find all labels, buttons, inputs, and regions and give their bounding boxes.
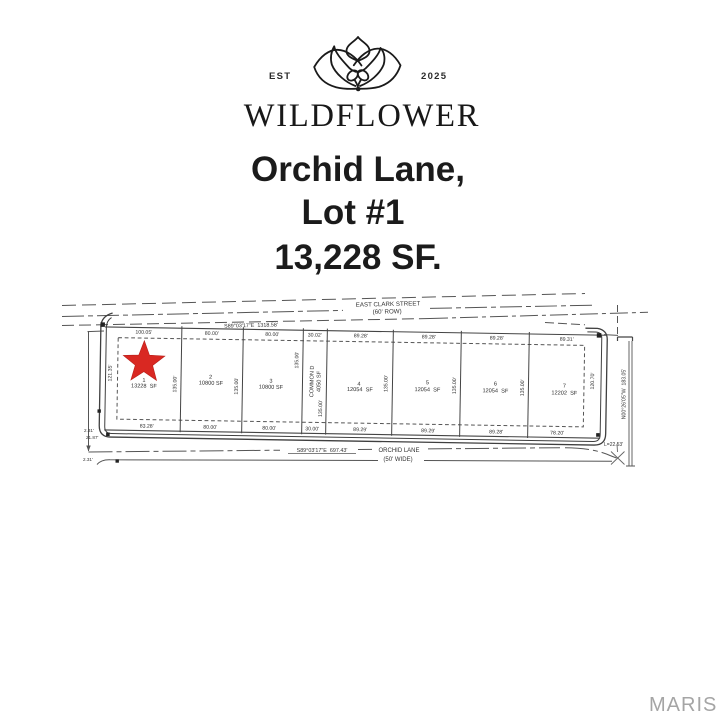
svg-text:135.00': 135.00': [318, 400, 324, 417]
svg-text:10800 SF: 10800 SF: [259, 384, 284, 390]
svg-text:N00°26'05"W 183.05': N00°26'05"W 183.05': [622, 369, 628, 420]
svg-text:2.31': 2.31': [83, 457, 93, 462]
svg-text:12054 SF: 12054 SF: [347, 387, 373, 393]
svg-text:135.00': 135.00': [520, 379, 526, 396]
svg-text:(60' ROW): (60' ROW): [373, 308, 402, 316]
svg-text:80.00': 80.00': [265, 332, 279, 338]
svg-text:4050 SF: 4050 SF: [316, 370, 322, 392]
svg-text:12054 SF: 12054 SF: [414, 387, 440, 393]
svg-text:120.70': 120.70': [590, 373, 596, 390]
svg-text:30.02': 30.02': [308, 332, 322, 338]
svg-text:30.00': 30.00': [305, 426, 319, 432]
svg-text:89.28': 89.28': [422, 334, 436, 340]
svg-text:135.00': 135.00': [234, 378, 240, 395]
svg-text:L=22.53': L=22.53': [604, 442, 623, 448]
svg-text:89.28': 89.28': [354, 333, 368, 339]
svg-text:80.00': 80.00': [262, 426, 276, 432]
svg-text:89.28': 89.28': [489, 429, 503, 435]
svg-text:78.20': 78.20': [550, 430, 564, 436]
svg-text:89.29': 89.29': [353, 427, 367, 433]
svg-text:135.00': 135.00': [172, 376, 178, 393]
svg-text:121.35': 121.35': [107, 365, 113, 382]
svg-text:ORCHID LANE: ORCHID LANE: [378, 448, 419, 454]
svg-text:10800 SF: 10800 SF: [199, 380, 224, 386]
svg-text:83.28': 83.28': [140, 424, 154, 430]
svg-text:135.00': 135.00': [452, 377, 458, 394]
svg-text:80.00': 80.00': [205, 331, 219, 337]
svg-text:EAST CLARK STREET: EAST CLARK STREET: [356, 300, 421, 308]
svg-text:6: 6: [494, 381, 497, 387]
svg-text:7: 7: [563, 384, 566, 390]
svg-text:89.29': 89.29': [421, 428, 435, 434]
svg-text:100.05': 100.05': [135, 330, 152, 336]
svg-text:12054 SF: 12054 SF: [482, 388, 508, 394]
svg-text:(50' WIDE): (50' WIDE): [383, 457, 412, 463]
svg-text:89.28': 89.28': [490, 336, 504, 342]
svg-text:21.87': 21.87': [86, 435, 98, 440]
svg-text:135.00': 135.00': [294, 352, 300, 369]
svg-text:2.31': 2.31': [84, 428, 94, 433]
svg-text:13228 SF: 13228 SF: [131, 383, 157, 389]
svg-text:5: 5: [426, 380, 429, 386]
svg-text:135.00': 135.00': [383, 375, 389, 392]
svg-text:12202 SF: 12202 SF: [551, 390, 577, 396]
svg-text:89.31': 89.31': [560, 337, 574, 343]
svg-text:COMMON D: COMMON D: [309, 365, 316, 397]
svg-text:80.00': 80.00': [203, 425, 217, 431]
